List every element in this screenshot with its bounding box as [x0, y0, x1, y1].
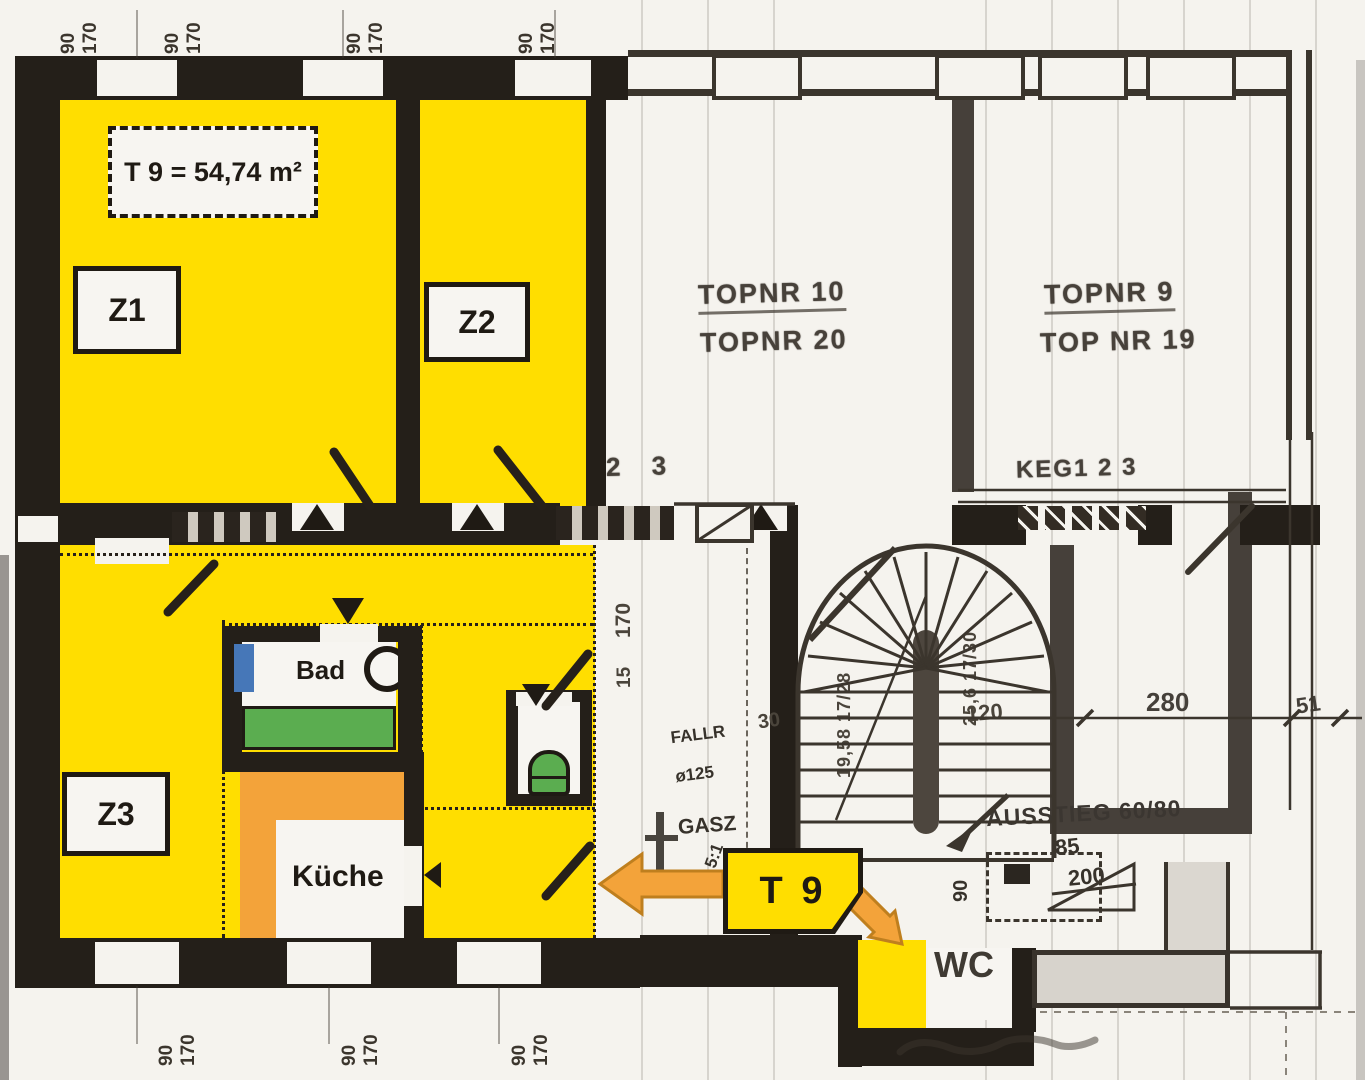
pencil-note: 2 3 [606, 451, 679, 483]
door-arrow-up [300, 504, 334, 530]
room-label-kueche: Küche [292, 860, 384, 895]
scan-smudge [0, 555, 9, 1080]
unit-tag: T 9 [760, 870, 827, 913]
window [515, 60, 591, 96]
window [287, 942, 371, 984]
dim-90: 90 [950, 862, 973, 902]
scan-line [641, 0, 643, 1080]
wall-band-right1 [952, 505, 1026, 545]
window-dim-label: 90170 [118, 2, 249, 54]
floor-plan: Bad Küche WC T 9 = 54,74 m² Z1 Z2 Z3 TOP… [0, 0, 1365, 1080]
wc-highlight-fill [858, 940, 926, 1028]
gas-riser-symbol [645, 812, 678, 872]
wall-band-right3 [1240, 505, 1320, 545]
neighbor-left-line2: TOPNR 20 [700, 324, 848, 359]
bad-window-blue [234, 644, 254, 692]
window [935, 54, 1025, 100]
room-label-box-z2: Z2 [424, 282, 530, 362]
room-label-z2: Z2 [458, 304, 495, 341]
wall-bad-right [398, 626, 422, 772]
door-arrow-up [744, 504, 778, 530]
door-sill-hatch [556, 506, 674, 540]
valve-symbol [1004, 864, 1030, 884]
stair-dim-left: 19,58 17/28 [834, 648, 855, 778]
dim-30: 30 [757, 709, 782, 735]
window [95, 538, 169, 564]
wall-z2-right [586, 98, 606, 508]
window [97, 60, 177, 96]
dotted-line [593, 545, 596, 938]
window [1038, 54, 1128, 100]
dashed-line [746, 548, 748, 858]
door-arrow-down [522, 684, 550, 706]
scan-smudge [1356, 60, 1365, 1080]
keller-note: KEG1 2 3 [1016, 453, 1138, 484]
dim-15: 15 [614, 652, 636, 688]
window-dim-label: 90170 [472, 2, 603, 54]
window-dim-label: 90170 [295, 1014, 426, 1066]
door-opening [404, 846, 422, 906]
wall-right-outline [1286, 50, 1312, 440]
wall-z1-z2 [396, 98, 420, 508]
scan-line [1117, 0, 1119, 1080]
dim-280: 280 [1146, 688, 1189, 718]
wall-stair-right [1050, 545, 1074, 813]
window [18, 516, 58, 542]
door-arrow-up [460, 504, 494, 530]
window-dim-label: 90170 [112, 1014, 243, 1066]
room-label-wc: WC [934, 944, 994, 985]
toilet-icon [528, 750, 570, 796]
room-label-bad: Bad [296, 656, 345, 686]
room-label-box-z1: Z1 [73, 266, 181, 354]
toilet-seat-line [528, 776, 570, 779]
window [712, 54, 802, 100]
stair-corridor-gray [1032, 950, 1230, 1008]
room-label-box-z3: Z3 [62, 772, 170, 856]
window [303, 60, 383, 96]
dashed-annotation-box [986, 852, 1102, 922]
hall-orange [240, 772, 404, 820]
dim-120: 120 [965, 698, 1004, 726]
bathtub-icon [242, 706, 396, 750]
door-sill-hatch [172, 512, 276, 542]
corridor-upper-gray [1166, 862, 1228, 950]
dim-51: 51 [1294, 690, 1322, 718]
window-dim-label: 90170 [465, 1014, 596, 1066]
area-label-box: T 9 = 54,74 m² [108, 126, 318, 218]
door-arrow-left [424, 862, 441, 888]
area-label: T 9 = 54,74 m² [124, 157, 302, 188]
room-label-z1: Z1 [108, 292, 145, 329]
scan-line [707, 0, 709, 1080]
neighbor-left-line1: TOPNR 10 [698, 276, 846, 315]
window [1146, 54, 1236, 100]
window [457, 942, 541, 984]
unit-tag-inner: T 9 [728, 853, 858, 929]
door-arrow-down [332, 598, 364, 624]
dotted-line [420, 807, 595, 810]
wall-wc-bay-bottom [838, 1028, 1034, 1066]
door-opening [320, 624, 378, 642]
dotted-line [60, 553, 593, 556]
fallr-note: FALLR ø125 [648, 702, 733, 808]
unit-tag-box: T 9 [723, 848, 863, 934]
neighbor-right-line1: TOPNR 9 [1044, 276, 1175, 314]
room-label-z3: Z3 [97, 796, 134, 833]
hall-orange-strip [240, 820, 276, 938]
dim-170: 170 [612, 592, 636, 638]
window [95, 942, 179, 984]
keller-hatch [1018, 506, 1146, 530]
gasz-note: GASZ [677, 812, 737, 840]
wall-bad-bottom [222, 752, 424, 772]
window-dim-label: 90170 [300, 2, 431, 54]
wall-bottom-mid [640, 935, 840, 987]
neighbor-right-line2: TOP NR 19 [1040, 324, 1197, 359]
wall-topnr-divider [952, 92, 974, 492]
